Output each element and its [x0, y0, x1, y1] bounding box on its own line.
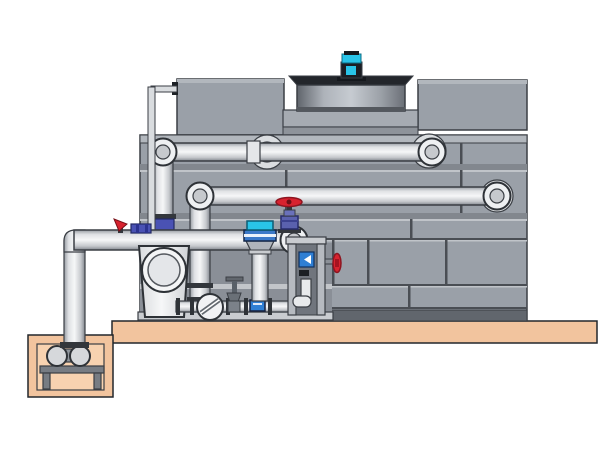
- pump-column: [252, 253, 268, 301]
- illustration-canvas: [0, 0, 600, 450]
- butterfly-valve-stem: [325, 259, 333, 264]
- manifold-flange-5: [268, 298, 272, 315]
- cluster-valve-rib1: [136, 224, 139, 233]
- gate-valve-stem: [232, 281, 237, 294]
- motor-cap-top: [344, 51, 359, 55]
- concrete-slab: [112, 321, 597, 343]
- pipe3-drop-to-sump: [64, 240, 85, 346]
- globe-valve-handwheel-hub: [287, 200, 292, 205]
- pump-base-label-text-line: [253, 303, 262, 305]
- pipe1-right-elbow-core: [425, 145, 439, 159]
- suction-instrument-cluster: [131, 224, 151, 233]
- separator-inlet-core: [148, 254, 180, 286]
- sump-pipe-flange: [60, 342, 89, 348]
- stand-inner-elbow: [293, 296, 311, 307]
- cluster-valve-rib2: [145, 224, 148, 233]
- upper-supply-pipe: [150, 139, 446, 166]
- pipe1-run: [163, 143, 433, 161]
- globe-valve-body: [281, 216, 298, 229]
- fan-cowl: [289, 76, 413, 111]
- manifold-flange-1: [176, 298, 180, 315]
- pump-motor-end: [47, 346, 67, 366]
- v-seam-f2: [367, 240, 370, 284]
- seam-band-1-bevel: [140, 170, 527, 172]
- check-valve: [197, 294, 223, 320]
- riser2-flange-upper: [187, 283, 213, 288]
- upper-left-panel: [177, 79, 284, 135]
- pump-motor-cap: [247, 221, 273, 230]
- fan-deck: [283, 110, 418, 127]
- v-seam-e1: [410, 219, 413, 238]
- stand-dark-label: [299, 270, 309, 276]
- pump-column-flange: [249, 250, 271, 254]
- globe-valve-bonnet: [284, 210, 295, 216]
- pipe2-left-elbow-core: [193, 189, 207, 203]
- pipe1-left-elbow-core: [156, 145, 170, 159]
- stand-bar: [40, 366, 104, 373]
- globe-valve-body-line: [281, 220, 298, 222]
- top-rail: [140, 135, 527, 143]
- pipe2-run: [200, 187, 497, 205]
- stand-leg-right: [94, 373, 101, 389]
- cowl-base-shadow: [297, 107, 405, 111]
- stand-top-plate: [286, 237, 326, 244]
- pipe1-coupling: [247, 141, 260, 163]
- slab-top: [112, 321, 597, 343]
- overflow-downcomer: [148, 87, 155, 232]
- upper-right-panel: [418, 80, 527, 130]
- seam-band-1: [140, 164, 527, 170]
- pump-motor-band: [244, 234, 276, 237]
- upper-left-panel-bevel: [177, 79, 284, 83]
- control-stand: [286, 237, 326, 315]
- stand-channel-right: [317, 244, 325, 315]
- middle-return-pipe: [187, 183, 511, 210]
- manifold-flange-2: [190, 298, 194, 315]
- motor-cap: [342, 54, 361, 63]
- pump-base-label: [250, 300, 265, 311]
- v-seam-f3: [445, 240, 448, 284]
- cooling-tower-diagram: [0, 0, 600, 450]
- fan-deck-lower-band: [283, 127, 418, 135]
- stand-leg-left: [43, 373, 50, 389]
- pump-volute-end: [70, 346, 90, 366]
- pipe2-right-elbow-core: [490, 189, 504, 203]
- butterfly-valve-hub: [335, 259, 339, 267]
- v-seam-g1: [408, 286, 411, 307]
- gate-valve-body: [228, 301, 240, 312]
- motor-body-window: [346, 66, 356, 75]
- manifold-flange-4: [244, 298, 248, 315]
- v-seam-b1: [460, 143, 463, 164]
- upper-right-panel-bevel: [418, 80, 527, 84]
- gate-valve-handle: [226, 277, 243, 281]
